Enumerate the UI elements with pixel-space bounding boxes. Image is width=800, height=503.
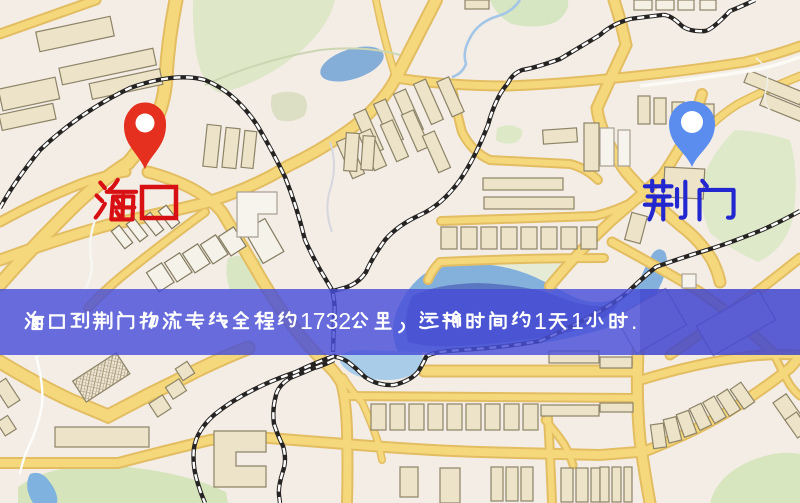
svg-text:1: 1 (534, 308, 547, 334)
svg-text:1: 1 (571, 308, 584, 334)
svg-text:1732: 1732 (300, 308, 351, 334)
svg-text:.: . (631, 308, 637, 334)
